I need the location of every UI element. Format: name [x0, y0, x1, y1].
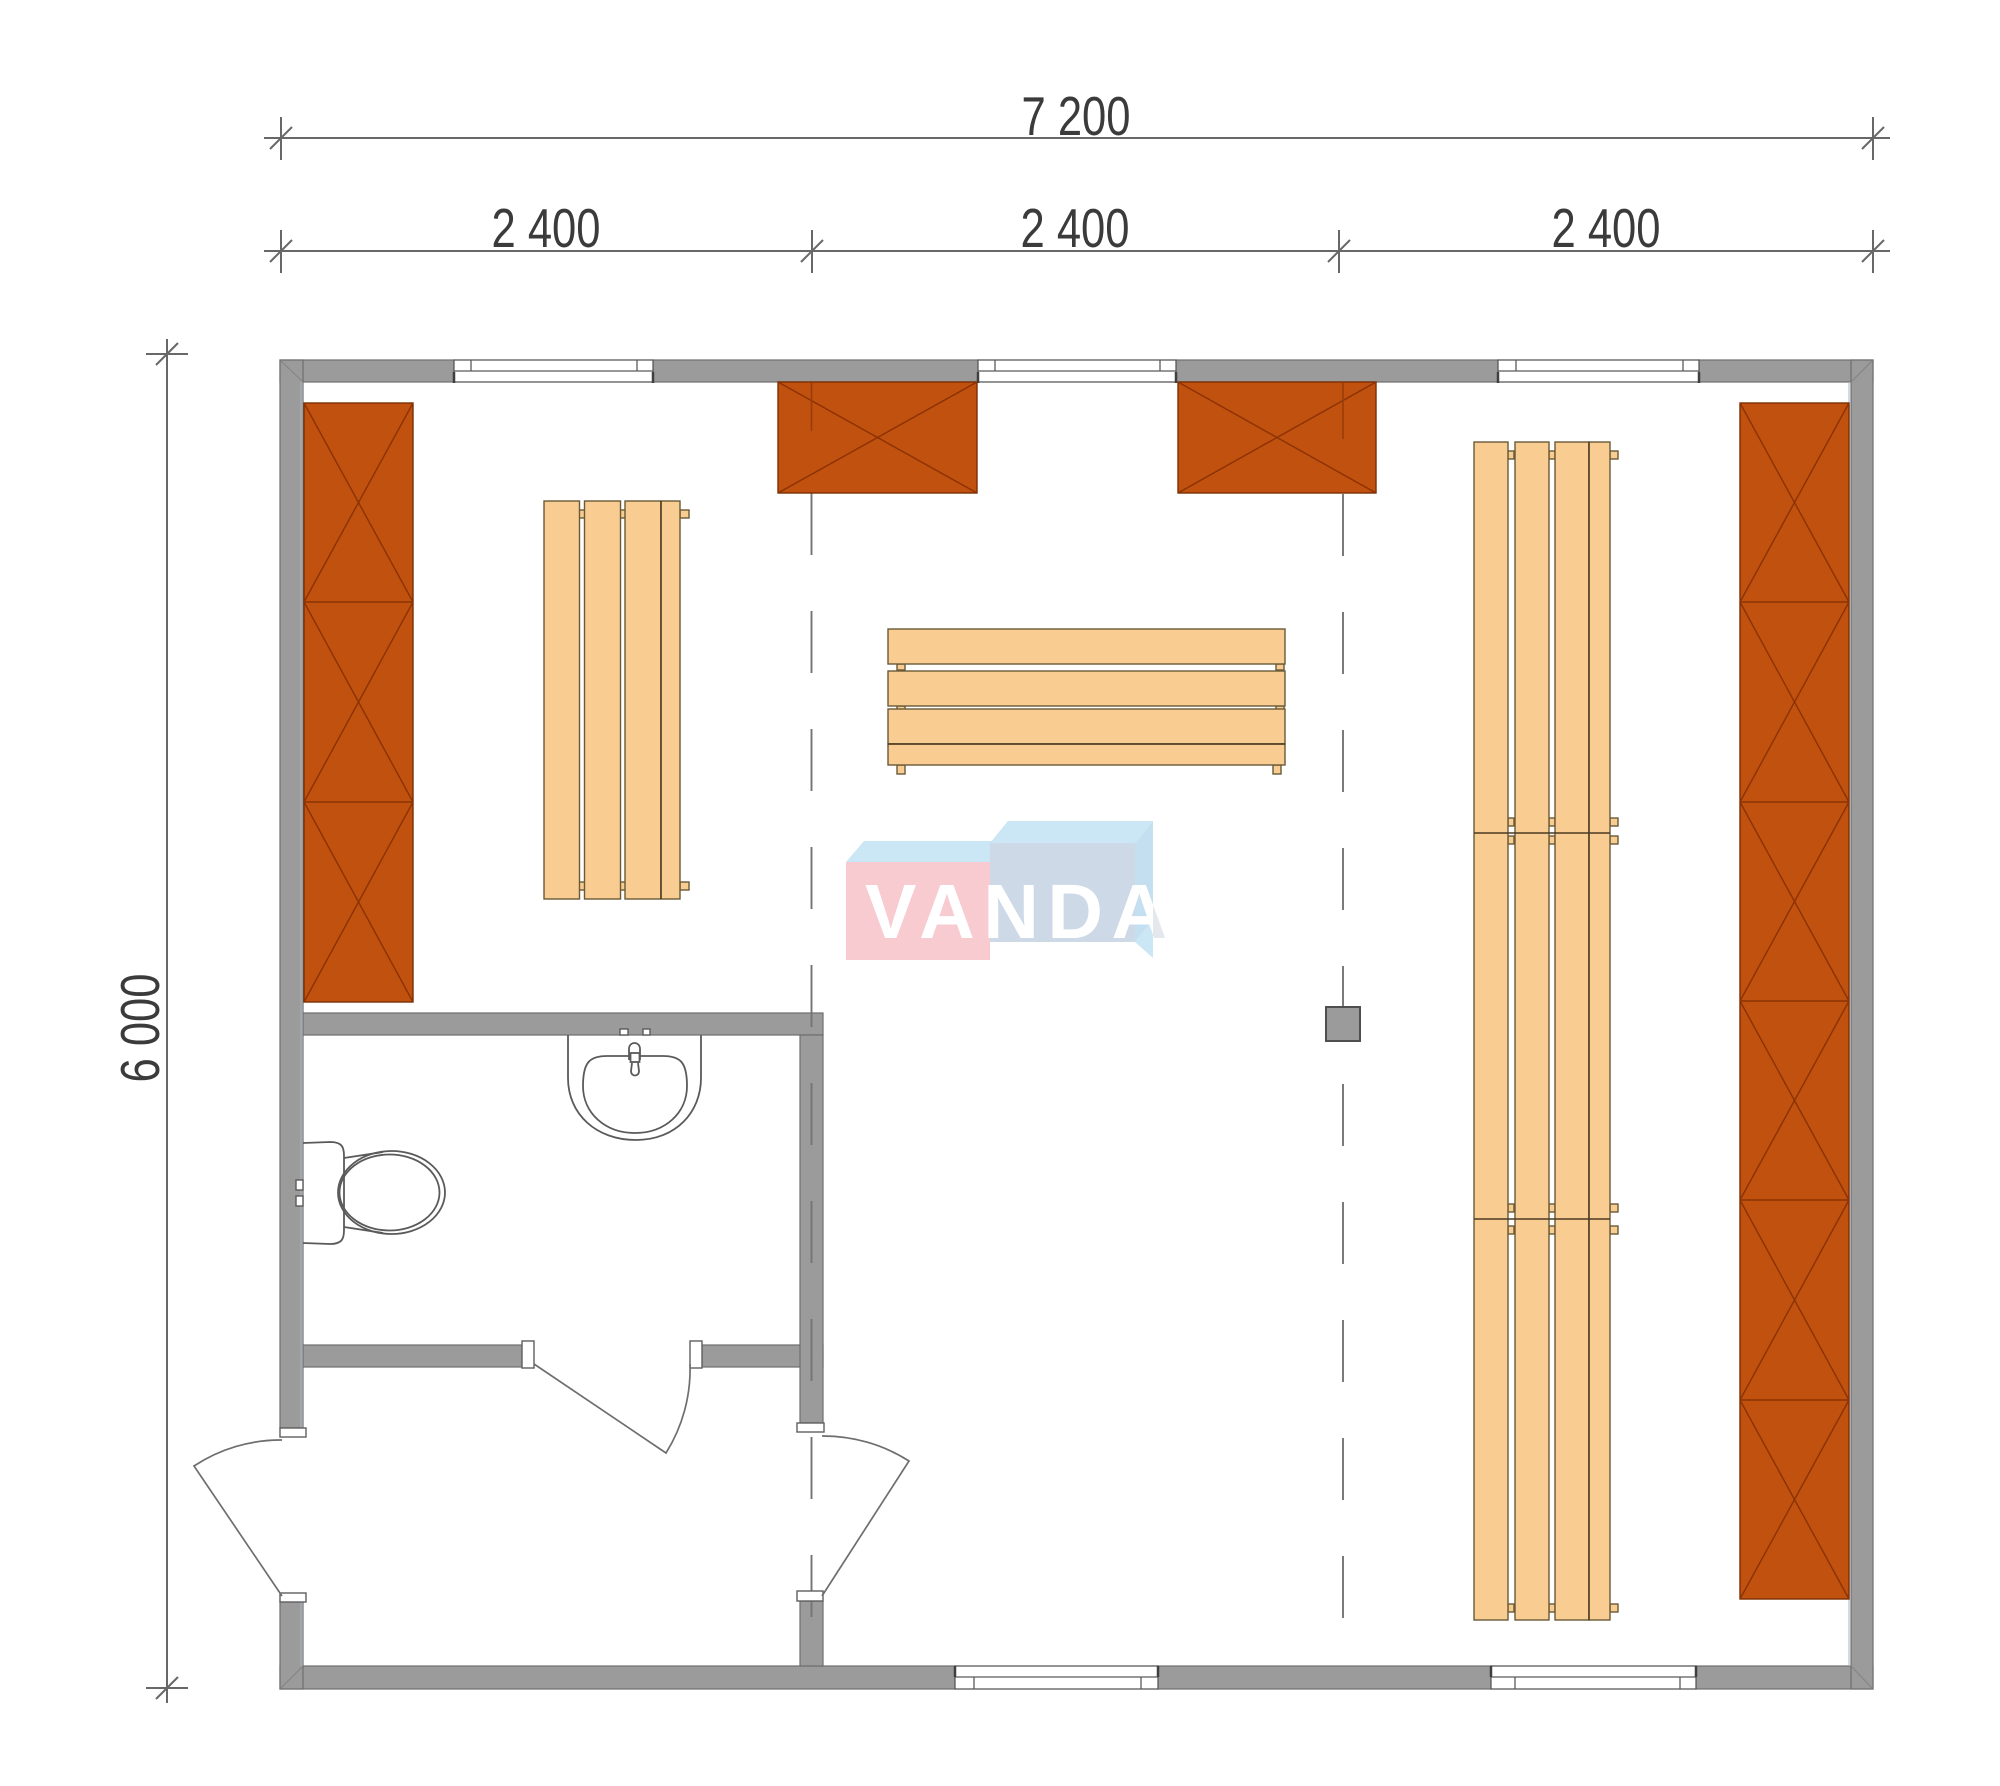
svg-text:VANDA: VANDA — [865, 869, 1176, 955]
svg-text:2 400: 2 400 — [1020, 198, 1129, 259]
svg-text:2 400: 2 400 — [491, 198, 600, 259]
svg-text:6 000: 6 000 — [110, 973, 171, 1082]
svg-text:7 200: 7 200 — [1021, 86, 1130, 147]
svg-text:2 400: 2 400 — [1551, 198, 1660, 259]
